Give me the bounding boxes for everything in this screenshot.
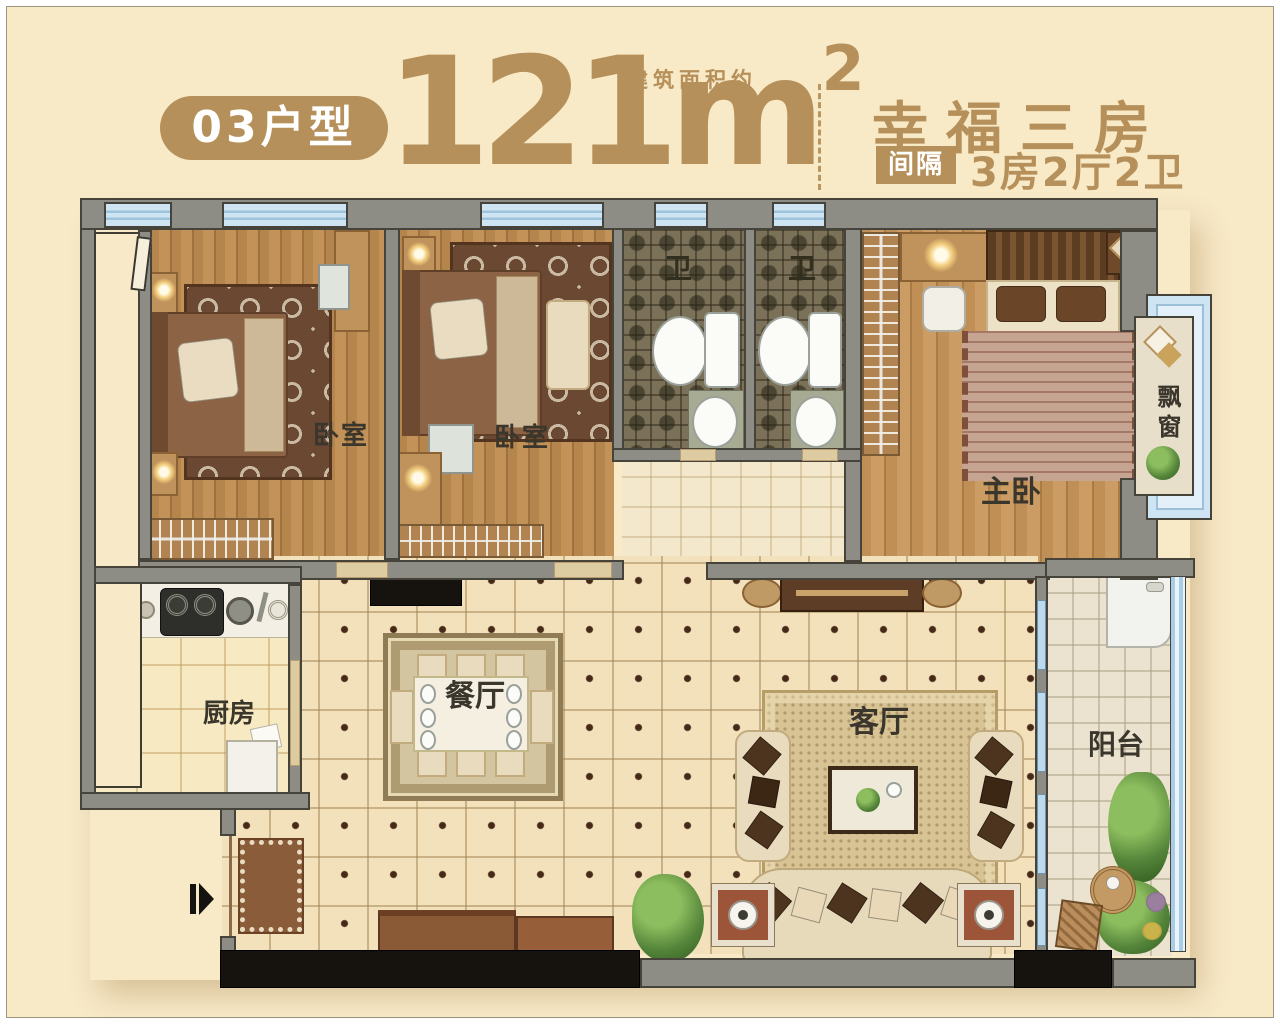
armchair-right-pillow-2 <box>979 775 1012 808</box>
floor-plan: 卧室 卧室 卫 卫 主卧 飘窗 厨房 餐厅 客厅 阳台 <box>0 0 1280 1024</box>
bedroom-1-pillow <box>177 337 240 403</box>
kitchen-label: 厨房 <box>196 700 262 729</box>
dining-plate-1 <box>420 684 436 704</box>
dining-chair-b3 <box>495 750 525 777</box>
side-table-right-plate-center <box>984 910 994 920</box>
balcony-cup <box>1106 876 1120 890</box>
bathroom-1-label: 卫 <box>658 254 698 285</box>
side-table-left-plate-center <box>738 910 748 920</box>
bedroom-2-pillow <box>429 297 489 360</box>
coffee-table-plate <box>886 782 902 798</box>
bedroom-2-wardrobe <box>398 524 544 558</box>
bathroom-1-toilet-tank <box>704 312 740 388</box>
bedroom-2-lamp-bottom <box>404 464 432 492</box>
kitchen-dish <box>268 600 288 620</box>
bedroom-2-throw <box>496 276 538 428</box>
dining-chair-b2 <box>456 750 486 777</box>
kitchen-door <box>290 660 300 766</box>
dining-plate-5 <box>506 708 522 728</box>
balcony-label: 阳台 <box>1084 730 1148 761</box>
wall-bedroom2-bath1 <box>612 228 624 454</box>
bedroom-1-headboard <box>150 312 168 458</box>
balcony-slider-glass-2 <box>1037 692 1046 772</box>
tv-side-left <box>742 578 782 608</box>
window-top-3 <box>480 202 604 228</box>
armchair-left-pillow-2 <box>748 776 780 808</box>
bedroom2-door <box>554 562 612 578</box>
bedroom-1-throw <box>244 318 284 452</box>
wall-bottom-gray-2 <box>1112 958 1196 988</box>
wall-bottom-black <box>220 950 640 988</box>
balcony-flower-yellow <box>1142 922 1162 940</box>
bedroom1-door <box>336 562 388 578</box>
bedroom-2-lamp-top <box>407 242 431 266</box>
bedroom-1-tv <box>318 264 350 310</box>
bedroom-1-label: 卧室 <box>302 422 380 451</box>
master-rug <box>962 331 1138 481</box>
wall-bath2-master <box>844 228 862 562</box>
bedroom-2-headboard <box>402 270 420 436</box>
master-pillow-left <box>996 286 1046 322</box>
wall-bottom-black-2 <box>1014 950 1112 988</box>
bath2-door <box>802 449 838 461</box>
washing-machine-button <box>1146 582 1164 592</box>
wall-master-bottom <box>706 562 1050 580</box>
bathroom-2-toilet-tank <box>808 312 842 388</box>
bath1-door <box>680 449 716 461</box>
wall-bedroom1-bedroom2 <box>384 228 400 560</box>
kitchen-fridge <box>226 740 278 796</box>
wall-bottom-gray <box>640 958 1018 988</box>
bedroom-2-bench <box>546 300 590 390</box>
dining-plate-4 <box>506 684 522 704</box>
living-room-label: 客厅 <box>846 706 912 739</box>
wall-bath1-bath2 <box>744 228 756 454</box>
stove-burner-left-icon <box>166 594 188 616</box>
bathroom-2-label: 卫 <box>782 254 822 285</box>
window-top-bath2 <box>772 202 826 228</box>
dining-chair-right <box>530 690 554 744</box>
balcony-slider-glass-3 <box>1037 794 1046 874</box>
bay-window-label: 飘窗 <box>1150 384 1185 468</box>
dining-room-label: 餐厅 <box>442 680 508 713</box>
dining-chair-left <box>390 690 414 744</box>
floor-plant <box>632 874 704 962</box>
bathroom-1-basin <box>692 396 738 448</box>
balcony-slider-glass-4 <box>1037 888 1046 946</box>
bathroom-2-basin <box>794 396 838 448</box>
balcony-flower-purple <box>1146 892 1166 912</box>
wall-kitchen-bottom <box>80 792 310 810</box>
stove-burner-right-icon <box>194 594 216 616</box>
bedroom-1-wardrobe <box>148 518 274 560</box>
entry-arrow-bar-icon <box>190 884 196 914</box>
door-mat <box>240 840 302 932</box>
bedroom-1-lamp-top <box>152 278 176 302</box>
coffee-table-flowers <box>856 788 880 812</box>
wall-kitchen-top <box>94 566 302 584</box>
bedroom-2-label: 卧室 <box>482 424 562 453</box>
window-top-2 <box>222 202 348 228</box>
master-bed-headboard <box>986 230 1120 282</box>
balcony-chair <box>1055 899 1103 952</box>
entry-door-line <box>229 836 232 936</box>
kitchen-wok <box>226 597 254 625</box>
dining-chair-b1 <box>417 750 447 777</box>
master-bedroom-label: 主卧 <box>976 476 1046 509</box>
balcony-slider-glass-1 <box>1037 600 1046 670</box>
entry-arrow-icon <box>199 883 214 915</box>
bedroom-1-lamp-bottom <box>152 460 176 484</box>
sofa-pillow-4 <box>868 888 902 922</box>
master-wardrobe <box>862 232 900 456</box>
shaft <box>94 232 142 788</box>
wall-balcony-top <box>1045 558 1195 578</box>
dining-plate-2 <box>420 708 436 728</box>
window-top-bath1 <box>654 202 708 228</box>
wall-entry-top <box>220 808 236 836</box>
dining-plate-6 <box>506 730 522 750</box>
master-lamp <box>924 238 958 272</box>
window-top-1 <box>104 202 172 228</box>
master-pillow-right <box>1056 286 1106 322</box>
dining-plate-3 <box>420 730 436 750</box>
hallway-floor <box>622 454 844 566</box>
balcony-glazing <box>1170 576 1186 952</box>
tv-screen-icon <box>796 590 908 596</box>
bathroom-2-toilet-bowl <box>758 316 812 386</box>
bathroom-1-toilet-bowl <box>652 316 708 386</box>
tv-side-right <box>922 578 962 608</box>
master-stool <box>922 286 966 332</box>
